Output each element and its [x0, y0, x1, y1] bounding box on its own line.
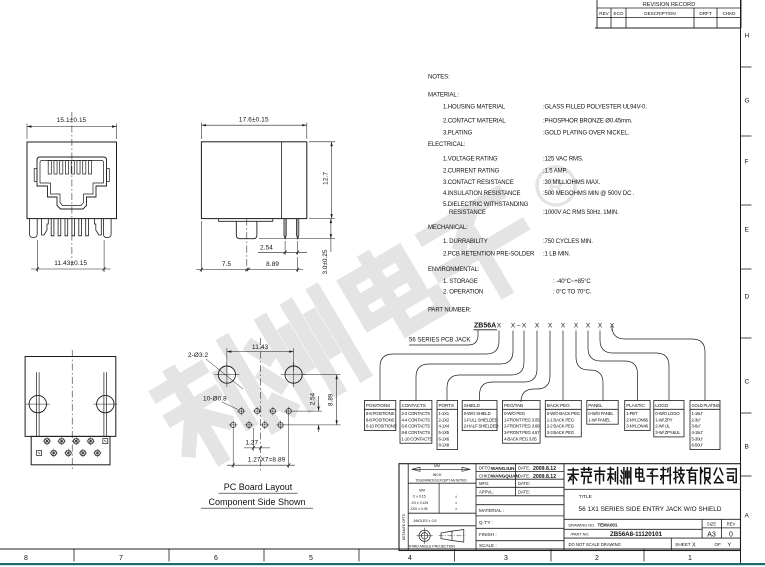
svg-text::1 LB MIN.: :1 LB MIN. [543, 252, 571, 258]
svg-text:DESCRIPTION: DESCRIPTION [644, 11, 675, 16]
svg-text:2. OPERATION: 2. OPERATION [443, 290, 483, 296]
svg-text:E: E [745, 227, 750, 234]
svg-text:0-W/O BACK PEG: 0-W/O BACK PEG [547, 411, 581, 416]
svg-text:X: X [511, 323, 516, 330]
svg-text::500 MEGOHMS MIN @ 500V DC .: :500 MEGOHMS MIN @ 500V DC . [543, 191, 635, 197]
svg-text:2.54: 2.54 [310, 392, 317, 405]
svg-text:/PART NO.: /PART NO. [571, 532, 590, 537]
svg-text:G: G [745, 98, 750, 105]
svg-text:3-W/ ZPY&UL: 3-W/ ZPY&UL [655, 430, 681, 435]
svg-text::30 MILLIOHMS MAX.: :30 MILLIOHMS MAX. [543, 180, 601, 186]
svg-text::1.5 AMP.: :1.5 AMP. [543, 169, 568, 175]
svg-text:6-6 CONTACTS: 6-6 CONTACTS [402, 424, 431, 429]
svg-text:2-2 CONTACTS: 2-2 CONTACTS [402, 411, 431, 416]
svg-text:8.89: 8.89 [328, 393, 335, 406]
svg-text:DRAWING NO.: DRAWING NO. [569, 522, 596, 527]
svg-text:X: X [561, 323, 566, 330]
svg-text:6-50u": 6-50u" [692, 443, 704, 448]
svg-text:CHKD: CHKD [722, 11, 736, 16]
svg-text:5-1X5: 5-1X5 [439, 430, 450, 435]
svg-text:0-W/O LOGO: 0-W/O LOGO [655, 411, 680, 416]
svg-text:X: X [598, 323, 603, 330]
svg-text:3-FRONT PEG 4.57: 3-FRONT PEG 4.57 [504, 430, 540, 435]
svg-text:Component Side Shown: Component Side Shown [208, 497, 305, 507]
svg-text:ENVIRONMENTAL:: ENVIRONMENTAL: [428, 267, 480, 273]
svg-text:2009.8.12: 2009.8.12 [533, 474, 556, 480]
svg-text::125 VAC RMS.: :125 VAC RMS. [543, 157, 584, 163]
svg-text:REV: REV [727, 522, 736, 527]
svg-text::750 CYCLES MIN.: :750 CYCLES MIN. [543, 239, 593, 245]
svg-text:BACK PEG: BACK PEG [547, 403, 570, 408]
svg-text:WANGJUN: WANGJUN [491, 466, 515, 471]
svg-text:POSITIONS: POSITIONS [366, 403, 390, 408]
svg-text:2.PCB RETENTION PRE-SOLDER: 2.PCB RETENTION PRE-SOLDER [443, 252, 535, 258]
svg-text:15.1±0.15: 15.1±0.15 [57, 117, 87, 124]
svg-text:2-HALF SHIELDED: 2-HALF SHIELDED [464, 424, 499, 429]
svg-text:DATE:: DATE: [518, 481, 530, 486]
svg-text:NOTES:: NOTES: [428, 75, 450, 81]
svg-text:5-30u": 5-30u" [692, 436, 704, 441]
svg-text:1-15u": 1-15u" [692, 411, 704, 416]
svg-text:6: 6 [214, 555, 218, 562]
svg-text:ANGLES ± 0.5: ANGLES ± 0.5 [414, 519, 437, 523]
svg-text:PC Board Layout: PC Board Layout [224, 482, 293, 492]
svg-text:CONTACTS: CONTACTS [402, 403, 426, 408]
svg-text:±: ± [455, 507, 457, 511]
svg-text:2.54: 2.54 [260, 245, 273, 252]
svg-text:4: 4 [408, 555, 412, 562]
svg-text:DRFT: DRFT [699, 11, 711, 16]
svg-text:12.7: 12.7 [323, 171, 330, 184]
svg-text:Q.T'Y :: Q.T'Y : [479, 520, 493, 525]
svg-text:4-4 CONTACTS: 4-4 CONTACTS [402, 417, 431, 422]
svg-text:0-W/O PANEL: 0-W/O PANEL [588, 411, 614, 416]
svg-text:8-8 POSITIONS: 8-8 POSITIONS [366, 417, 395, 422]
svg-text:4.INSULATION RESISTANCE: 4.INSULATION RESISTANCE [443, 191, 520, 197]
svg-text:C: C [745, 379, 750, 386]
svg-text:: 0°C TO 70°C.: : 0°C TO 70°C. [553, 290, 592, 296]
svg-text:TEMA001: TEMA001 [598, 523, 618, 528]
svg-text:4-BACK PEG 3.05: 4-BACK PEG 3.05 [504, 436, 537, 441]
svg-text:LOGO: LOGO [655, 403, 668, 408]
svg-text:X: X [586, 323, 591, 330]
svg-text:1. STORAGE: 1. STORAGE [443, 279, 478, 285]
svg-text:.XX ± 0.125: .XX ± 0.125 [411, 501, 429, 505]
svg-text:2-NYLON66: 2-NYLON66 [626, 417, 648, 422]
svg-text:2009.8.12: 2009.8.12 [533, 466, 556, 472]
svg-text:7.5: 7.5 [222, 261, 232, 268]
svg-text:APPVL:: APPVL: [479, 490, 494, 495]
svg-text:RESISTANCE: RESISTANCE [449, 210, 486, 216]
svg-text:: -40°C~+85°C: : -40°C~+85°C [553, 279, 591, 285]
svg-text:8-1X8: 8-1X8 [439, 443, 450, 448]
svg-text:11.43±0.15: 11.43±0.15 [54, 260, 87, 267]
svg-text::GOLD PLATING OVER NICKEL.: :GOLD PLATING OVER NICKEL. [543, 131, 630, 137]
svg-text:1-1 BACK PEG: 1-1 BACK PEG [547, 417, 575, 422]
svg-text::PHOSPHOR BRONZE Ø0.45mm.: :PHOSPHOR BRONZE Ø0.45mm. [543, 119, 633, 125]
svg-text:H: H [745, 33, 750, 40]
svg-text:3: 3 [504, 555, 508, 562]
svg-text:PORTS: PORTS [439, 403, 454, 408]
svg-text:2.CURRENT RATING: 2.CURRENT RATING [443, 169, 500, 175]
svg-text:.X ± 0.15: .X ± 0.15 [412, 495, 426, 499]
svg-text:Y: Y [728, 543, 732, 549]
svg-text:THIRD ANGLE PROJECTION: THIRD ANGLE PROJECTION [408, 544, 455, 548]
svg-text:DATE:: DATE: [518, 473, 530, 478]
svg-text:1-1X1: 1-1X1 [439, 411, 450, 416]
svg-text:3.PLATING: 3.PLATING [443, 131, 473, 137]
svg-text:2: 2 [595, 555, 599, 562]
svg-text:PANEL: PANEL [588, 403, 603, 408]
svg-text:1: 1 [688, 555, 692, 562]
svg-text:F: F [745, 159, 749, 166]
svg-text:1-PBT: 1-PBT [626, 411, 638, 416]
svg-text:0-W/O SHIELD: 0-W/O SHIELD [464, 411, 491, 416]
svg-text:8: 8 [24, 555, 28, 562]
svg-text:MM: MM [419, 489, 425, 493]
svg-text:10-Ø0.8: 10-Ø0.8 [203, 396, 227, 403]
svg-text:1.27X7=8.89: 1.27X7=8.89 [248, 457, 286, 464]
svg-text:ECO: ECO [614, 11, 624, 16]
svg-text:1.HOUSING MATERIAL: 1.HOUSING MATERIAL [443, 105, 506, 111]
svg-text:2-3u": 2-3u" [692, 417, 702, 422]
svg-text:X: X [692, 543, 696, 549]
svg-text:6-1X6: 6-1X6 [439, 436, 450, 441]
svg-text:B: B [745, 444, 749, 451]
svg-text:ELECTRICAL:: ELECTRICAL: [428, 142, 466, 148]
svg-text:A3: A3 [707, 532, 716, 539]
svg-text:7: 7 [119, 555, 123, 562]
svg-text:PEG/TAB: PEG/TAB [504, 403, 523, 408]
svg-text:5.DIELECTRIC WITHSTANDING: 5.DIELECTRIC WITHSTANDING [443, 202, 529, 208]
svg-text:3-6u": 3-6u" [692, 424, 702, 429]
svg-text:0-10 POSITIONS: 0-10 POSITIONS [366, 424, 397, 429]
svg-text:2-Ø3.2: 2-Ø3.2 [188, 352, 208, 359]
svg-text:INCH: INCH [433, 473, 442, 477]
svg-text:1-FRONT PEG 3.05: 1-FRONT PEG 3.05 [504, 417, 540, 422]
svg-text:–: – [517, 322, 521, 329]
svg-text:56 1X1 SERIES SIDE ENTRY JACK: 56 1X1 SERIES SIDE ENTRY JACK W/O SHIELD [579, 506, 722, 513]
svg-text:X: X [522, 323, 527, 330]
svg-text:TITLE: TITLE [579, 494, 592, 500]
svg-text:DETAILED DFTS: DETAILED DFTS [402, 513, 406, 540]
svg-text:.XXX ± 0.05: .XXX ± 0.05 [410, 507, 428, 511]
svg-text::1000V AC RMS 50Hz. 1MIN.: :1000V AC RMS 50Hz. 1MIN. [543, 210, 619, 216]
svg-text:4-1X4: 4-1X4 [439, 424, 450, 429]
svg-text:2-1X2: 2-1X2 [439, 417, 450, 422]
svg-text:SHEET: SHEET [675, 542, 691, 547]
svg-text:DFTO:: DFTO: [479, 466, 492, 471]
svg-text:MECHANICAL:: MECHANICAL: [428, 225, 468, 231]
svg-text:1.VOLTAGE RATING: 1.VOLTAGE RATING [443, 157, 498, 163]
svg-text:3-NYLON46: 3-NYLON46 [626, 424, 648, 429]
svg-text:MM: MM [434, 464, 440, 468]
svg-text:MATERIAL :: MATERIAL : [428, 93, 460, 99]
svg-text:1.27: 1.27 [245, 440, 258, 447]
svg-text:DATE:: DATE: [518, 490, 530, 495]
svg-text:A: A [745, 513, 750, 520]
svg-text:2-W/ UL: 2-W/ UL [655, 424, 670, 429]
svg-text:4-15u": 4-15u" [692, 430, 704, 435]
svg-text:3.CONTACT RESISTANCE: 3.CONTACT RESISTANCE [443, 180, 514, 186]
svg-text:0-W/O PEG: 0-W/O PEG [504, 411, 526, 416]
svg-text:1. DURRABILITY: 1. DURRABILITY [443, 239, 488, 245]
svg-text:ZB56A: ZB56A [474, 323, 496, 330]
svg-text:ZB56A8-11120101: ZB56A8-11120101 [610, 531, 663, 538]
svg-text:56 SERIES PCB JACK: 56 SERIES PCB JACK [409, 338, 470, 344]
svg-text:1-W/ ZPY: 1-W/ ZPY [655, 417, 672, 422]
svg-text:2.CONTACT MATERIAL: 2.CONTACT MATERIAL [443, 119, 506, 125]
svg-text:3-3 BACK PEG: 3-3 BACK PEG [547, 430, 575, 435]
svg-text:D: D [745, 294, 750, 301]
svg-text:±: ± [455, 501, 457, 505]
svg-text:2-2 BACK PEG: 2-2 BACK PEG [547, 424, 575, 429]
svg-text:MFG:: MFG: [479, 481, 489, 486]
svg-text:SCALE :: SCALE : [479, 543, 497, 548]
svg-text:WANGQUAN: WANGQUAN [491, 474, 519, 479]
svg-text:11.43: 11.43 [252, 344, 269, 351]
svg-text:TOLERANCES EXCEPT AS NOTED: TOLERANCES EXCEPT AS NOTED [415, 478, 467, 482]
svg-text:8.89: 8.89 [266, 261, 279, 268]
svg-text:X: X [574, 323, 579, 330]
svg-text:0: 0 [729, 532, 733, 539]
svg-text:PART NUMBER:: PART NUMBER: [428, 308, 472, 314]
svg-text:SIZE: SIZE [707, 522, 717, 527]
svg-text:5: 5 [309, 555, 313, 562]
svg-text:PLASTIC: PLASTIC [626, 403, 645, 408]
svg-text::GLASS FILLED POLYESTER UL94V-: :GLASS FILLED POLYESTER UL94V-0. [543, 105, 647, 111]
svg-text:±: ± [455, 495, 457, 499]
svg-text:DATE:: DATE: [518, 466, 530, 471]
svg-text:OF: OF [715, 542, 722, 547]
svg-text:1-10 CONTACTS: 1-10 CONTACTS [402, 436, 433, 441]
svg-text:REV: REV [599, 11, 609, 16]
svg-text:2-FRONT PEG 3.68: 2-FRONT PEG 3.68 [504, 424, 540, 429]
svg-text:FINISH :: FINISH : [479, 532, 497, 537]
svg-text:17.6±0.15: 17.6±0.15 [239, 117, 269, 124]
svg-text:3.0±0.25: 3.0±0.25 [322, 249, 329, 274]
svg-text:SHIELD: SHIELD [464, 403, 481, 408]
svg-text:MATERIAL :: MATERIAL : [479, 508, 504, 513]
svg-text:1-W/ PANEL: 1-W/ PANEL [588, 417, 611, 422]
svg-text:REVISION RECORD: REVISION RECORD [643, 2, 696, 8]
svg-text:1-FULL SHIELDED: 1-FULL SHIELDED [464, 417, 498, 422]
svg-text:DO NOT SCALE DRAWING: DO NOT SCALE DRAWING [569, 542, 621, 547]
svg-text:8-8 CONTACTS: 8-8 CONTACTS [402, 430, 431, 435]
svg-text:GOLD PLATING: GOLD PLATING [692, 403, 720, 408]
svg-text:X: X [548, 323, 553, 330]
svg-text:X: X [497, 323, 502, 330]
svg-text:X: X [535, 323, 540, 330]
svg-text:6-6 POSITIONS: 6-6 POSITIONS [366, 411, 395, 416]
